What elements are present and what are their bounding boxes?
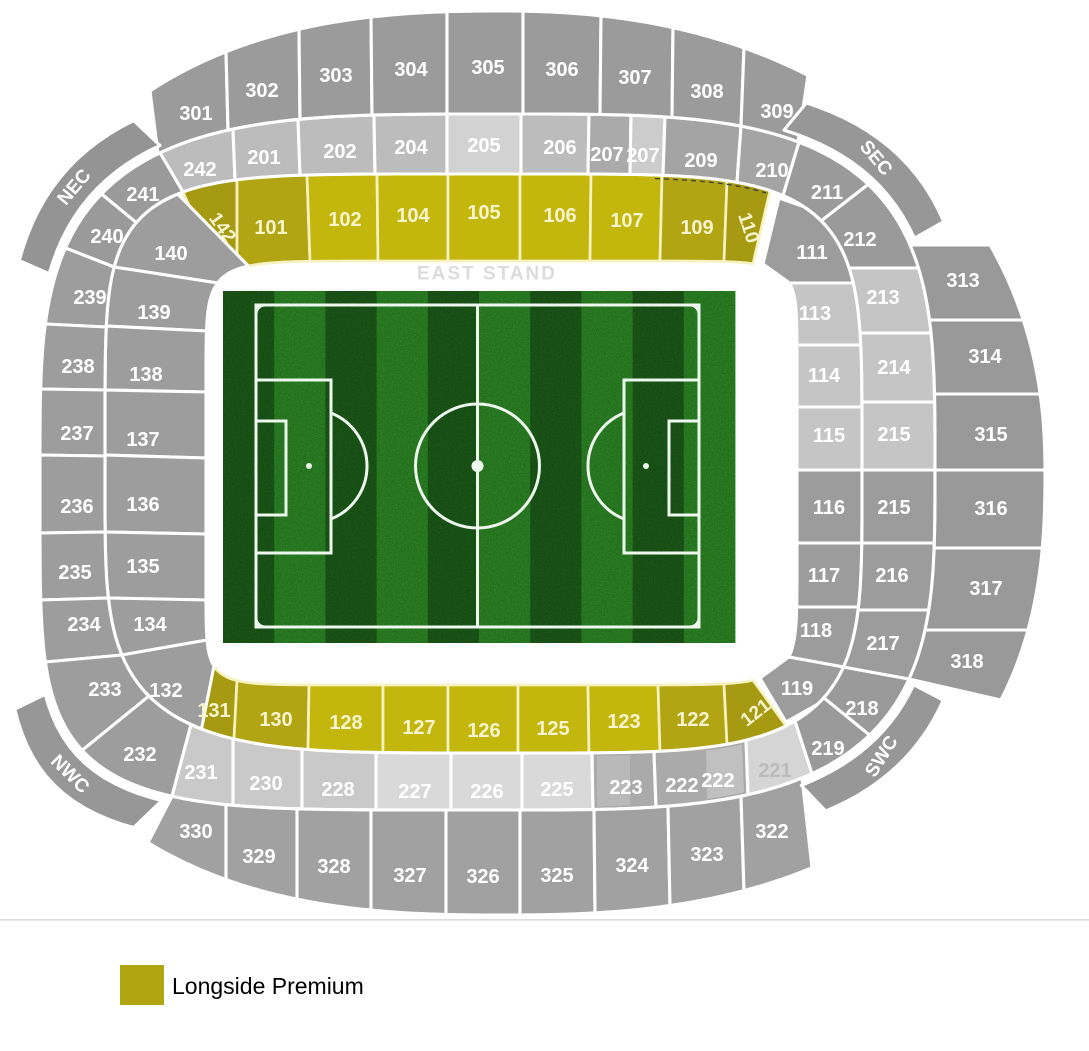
- svg-text:205: 205: [467, 135, 500, 157]
- svg-text:235: 235: [58, 562, 91, 584]
- svg-text:211: 211: [811, 182, 843, 204]
- svg-text:301: 301: [179, 103, 212, 125]
- svg-text:Longside Premium: Longside Premium: [172, 973, 364, 999]
- svg-text:207: 207: [626, 145, 659, 167]
- svg-text:204: 204: [394, 137, 428, 159]
- svg-text:236: 236: [60, 496, 93, 518]
- svg-text:227: 227: [398, 781, 431, 803]
- svg-text:240: 240: [90, 226, 123, 248]
- svg-text:218: 218: [845, 698, 878, 720]
- svg-text:135: 135: [126, 556, 159, 578]
- svg-text:113: 113: [799, 303, 831, 325]
- svg-text:323: 323: [690, 844, 723, 866]
- svg-text:213: 213: [866, 287, 899, 309]
- svg-text:228: 228: [321, 779, 354, 801]
- svg-text:327: 327: [393, 865, 426, 887]
- svg-text:325: 325: [540, 865, 573, 887]
- svg-text:314: 314: [968, 346, 1002, 368]
- svg-text:215: 215: [877, 424, 910, 446]
- svg-text:102: 102: [328, 209, 361, 231]
- svg-text:212: 212: [843, 229, 876, 251]
- svg-text:104: 104: [396, 205, 430, 227]
- svg-text:131: 131: [197, 700, 230, 722]
- svg-text:303: 303: [319, 65, 352, 87]
- svg-text:115: 115: [813, 425, 845, 447]
- svg-text:225: 225: [540, 779, 573, 801]
- svg-text:322: 322: [755, 821, 788, 843]
- svg-text:239: 239: [73, 287, 106, 309]
- svg-text:123: 123: [607, 711, 640, 733]
- svg-text:329: 329: [242, 846, 275, 868]
- svg-text:122: 122: [676, 709, 709, 731]
- svg-text:106: 106: [543, 205, 576, 227]
- svg-text:302: 302: [245, 80, 278, 102]
- svg-text:242: 242: [183, 159, 216, 181]
- svg-text:215: 215: [877, 497, 910, 519]
- svg-text:107: 107: [610, 210, 643, 232]
- svg-text:137: 137: [126, 429, 159, 451]
- svg-text:119: 119: [781, 678, 813, 700]
- svg-text:234: 234: [67, 614, 101, 636]
- svg-text:134: 134: [133, 614, 167, 636]
- svg-text:125: 125: [536, 718, 569, 740]
- svg-text:214: 214: [877, 357, 911, 379]
- svg-text:130: 130: [259, 709, 292, 731]
- svg-text:216: 216: [875, 565, 908, 587]
- svg-text:136: 136: [126, 494, 159, 516]
- svg-text:202: 202: [323, 141, 356, 163]
- svg-text:139: 139: [137, 302, 170, 324]
- svg-text:313: 313: [946, 270, 979, 292]
- svg-text:118: 118: [800, 620, 832, 642]
- svg-text:219: 219: [811, 738, 844, 760]
- svg-text:101: 101: [254, 217, 287, 239]
- svg-text:315: 315: [974, 424, 1007, 446]
- svg-text:132: 132: [149, 680, 182, 702]
- svg-text:238: 238: [61, 356, 94, 378]
- svg-text:201: 201: [247, 147, 280, 169]
- svg-text:222: 222: [701, 770, 734, 792]
- svg-text:316: 316: [974, 498, 1007, 520]
- svg-text:237: 237: [60, 423, 93, 445]
- svg-text:138: 138: [129, 364, 162, 386]
- svg-text:128: 128: [329, 712, 362, 734]
- svg-text:217: 217: [866, 633, 899, 655]
- svg-text:114: 114: [808, 365, 841, 387]
- svg-text:233: 233: [88, 679, 121, 701]
- svg-text:111: 111: [796, 242, 827, 264]
- svg-text:317: 317: [969, 578, 1002, 600]
- svg-text:306: 306: [545, 59, 578, 81]
- svg-text:328: 328: [317, 856, 350, 878]
- svg-text:116: 116: [813, 497, 845, 519]
- svg-text:210: 210: [755, 160, 788, 182]
- svg-text:223: 223: [609, 777, 642, 799]
- svg-text:231: 231: [184, 762, 217, 784]
- svg-text:305: 305: [471, 57, 504, 79]
- svg-text:330: 330: [179, 821, 212, 843]
- svg-text:232: 232: [123, 744, 156, 766]
- svg-text:308: 308: [690, 81, 723, 103]
- svg-text:230: 230: [249, 773, 282, 795]
- svg-text:207: 207: [590, 144, 623, 166]
- svg-text:126: 126: [467, 720, 500, 742]
- svg-text:209: 209: [684, 150, 717, 172]
- svg-text:309: 309: [760, 101, 793, 123]
- svg-text:221: 221: [758, 760, 791, 782]
- svg-text:EAST STAND: EAST STAND: [417, 264, 557, 285]
- svg-text:324: 324: [615, 855, 649, 877]
- svg-text:318: 318: [950, 651, 983, 673]
- svg-text:241: 241: [126, 184, 159, 206]
- svg-text:206: 206: [543, 137, 576, 159]
- svg-text:109: 109: [680, 217, 713, 239]
- svg-text:117: 117: [808, 565, 840, 587]
- svg-text:105: 105: [467, 202, 500, 224]
- svg-text:226: 226: [470, 781, 503, 803]
- svg-text:127: 127: [402, 717, 435, 739]
- svg-text:222: 222: [665, 775, 698, 797]
- svg-text:307: 307: [618, 67, 651, 89]
- svg-text:304: 304: [394, 59, 428, 81]
- svg-text:140: 140: [154, 243, 187, 265]
- svg-text:326: 326: [466, 866, 499, 888]
